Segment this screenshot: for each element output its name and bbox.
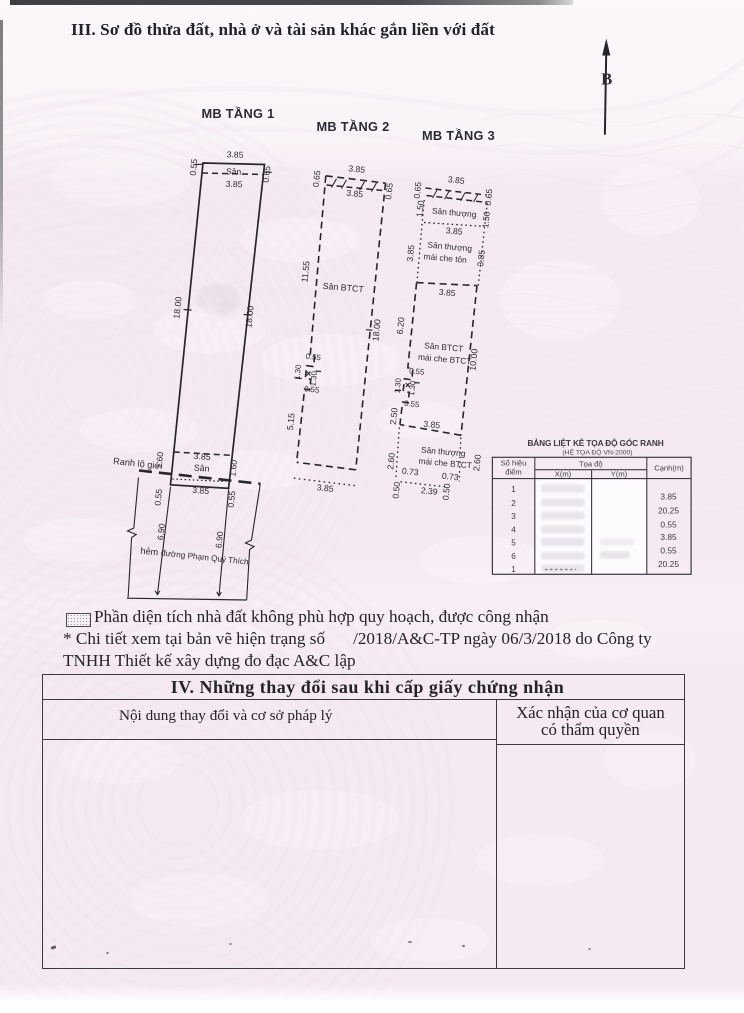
svg-text:0.55: 0.55	[404, 399, 421, 410]
svg-text:Cạnh(m): Cạnh(m)	[654, 464, 684, 473]
svg-text:2: 2	[511, 499, 516, 508]
svg-text:Tọa độ: Tọa độ	[579, 460, 603, 469]
svg-text:đường Phạm Quý Thích: đường Phạm Quý Thích	[160, 548, 249, 566]
svg-text:Số hiệu: Số hiệu	[501, 459, 527, 468]
svg-text:0.55: 0.55	[305, 352, 322, 363]
svg-text:20.25: 20.25	[658, 559, 679, 569]
svg-text:11.55: 11.55	[299, 260, 311, 282]
svg-text:0.65: 0.65	[483, 188, 495, 206]
svg-text:Sân BTCT: Sân BTCT	[424, 340, 464, 353]
svg-text:2.60: 2.60	[471, 454, 483, 472]
svg-text:MB TẦNG 1: MB TẦNG 1	[201, 106, 274, 121]
svg-text:0.73: 0.73	[441, 471, 459, 483]
svg-text:0.65: 0.65	[261, 165, 273, 183]
svg-text:5: 5	[511, 538, 516, 547]
svg-text:18.00: 18.00	[243, 305, 255, 328]
svg-text:3.85: 3.85	[660, 532, 677, 542]
svg-text:3.85: 3.85	[438, 287, 456, 298]
svg-text:Sân BTCT: Sân BTCT	[322, 281, 364, 295]
svg-text:0.55: 0.55	[409, 366, 426, 377]
svg-text:1.30: 1.30	[393, 377, 404, 394]
svg-text:MB TẦNG 2: MB TẦNG 2	[316, 119, 389, 134]
svg-text:0.73: 0.73	[401, 466, 419, 478]
svg-text:0.55: 0.55	[304, 384, 321, 395]
svg-text:3.85: 3.85	[316, 482, 334, 494]
svg-text:2.50: 2.50	[388, 407, 400, 425]
svg-text:0.55: 0.55	[660, 520, 677, 530]
svg-text:1: 1	[511, 485, 516, 494]
svg-text:3.85: 3.85	[405, 244, 417, 262]
svg-text:1.60: 1.60	[227, 459, 239, 477]
svg-text:3.85: 3.85	[447, 174, 465, 186]
svg-text:3.85: 3.85	[348, 163, 366, 175]
svg-text:0.55: 0.55	[660, 546, 677, 556]
svg-text:5.15: 5.15	[285, 413, 297, 431]
svg-text:Y(m): Y(m)	[611, 470, 628, 479]
svg-text:Sân: Sân	[194, 462, 210, 473]
svg-text:3.85: 3.85	[226, 179, 243, 190]
svg-text:1: 1	[511, 565, 516, 574]
svg-text:6.90: 6.90	[155, 523, 167, 541]
svg-text:3.85: 3.85	[445, 225, 463, 236]
svg-text:0.65: 0.65	[311, 170, 323, 188]
svg-text:(HỆ TỌA ĐỘ VN-2000): (HỆ TỌA ĐỘ VN-2000)	[562, 448, 632, 457]
svg-text:6.90: 6.90	[213, 531, 225, 549]
svg-text:3.85: 3.85	[194, 451, 212, 462]
svg-text:3.85: 3.85	[227, 149, 244, 160]
svg-text:10.00: 10.00	[467, 348, 479, 371]
svg-text:3: 3	[511, 512, 516, 521]
svg-text:MB TẦNG 3: MB TẦNG 3	[422, 128, 495, 143]
svg-text:3.85: 3.85	[475, 249, 487, 267]
svg-text:BẢNG LIỆT KÊ TỌA ĐỘ GÓC RANH: BẢNG LIỆT KÊ TỌA ĐỘ GÓC RANH	[527, 437, 663, 448]
svg-text:điểm: điểm	[505, 468, 521, 477]
svg-text:B: B	[601, 70, 612, 89]
svg-text:20.25: 20.25	[658, 506, 679, 516]
svg-text:hẻm: hẻm	[140, 546, 159, 558]
svg-text:mái che tôn: mái che tôn	[423, 251, 467, 265]
svg-text:2.60: 2.60	[385, 452, 397, 470]
svg-text:0.55: 0.55	[188, 158, 200, 176]
svg-text:0.55: 0.55	[152, 488, 164, 506]
svg-text:2.39: 2.39	[420, 485, 438, 497]
svg-text:0.50: 0.50	[390, 481, 402, 499]
svg-text:mái che BTCT: mái che BTCT	[418, 352, 472, 367]
svg-text:3.85: 3.85	[423, 419, 441, 431]
svg-text:4: 4	[511, 526, 516, 535]
svg-text:3.85: 3.85	[192, 485, 210, 496]
svg-text:0.50: 0.50	[440, 483, 452, 501]
svg-text:3.85: 3.85	[660, 492, 677, 502]
svg-text:X(m): X(m)	[555, 470, 572, 479]
svg-text:18.00: 18.00	[370, 319, 382, 342]
svg-text:6: 6	[511, 552, 516, 561]
svg-text:0.65: 0.65	[383, 182, 395, 200]
svg-text:0.65: 0.65	[412, 181, 424, 199]
svg-text:1.50: 1.50	[414, 200, 426, 218]
svg-text:Sân thượng: Sân thượng	[432, 206, 478, 220]
svg-text:6.20: 6.20	[395, 317, 407, 335]
svg-text:Sân: Sân	[226, 166, 242, 177]
svg-text:3.85: 3.85	[346, 188, 364, 200]
svg-text:18.00: 18.00	[171, 296, 183, 319]
